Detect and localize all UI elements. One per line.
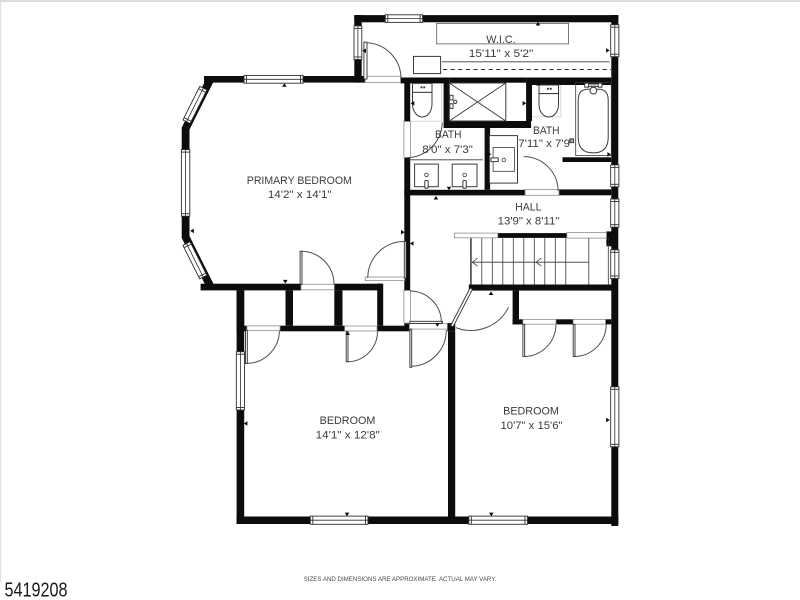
svg-text:14'1" x 12'8": 14'1" x 12'8" <box>316 430 380 442</box>
svg-text:PRIMARY BEDROOM: PRIMARY BEDROOM <box>247 175 352 187</box>
svg-text:HALL: HALL <box>515 201 541 213</box>
svg-text:10'7" x 15'6": 10'7" x 15'6" <box>501 420 563 432</box>
svg-text:W.I.C.: W.I.C. <box>486 34 516 46</box>
svg-text:BEDROOM: BEDROOM <box>503 406 559 418</box>
svg-text:14'2" x 14'1": 14'2" x 14'1" <box>268 189 332 201</box>
svg-text:BATH: BATH <box>435 129 462 141</box>
svg-text:15'11" x 5'2": 15'11" x 5'2" <box>469 48 534 60</box>
svg-text:BEDROOM: BEDROOM <box>320 415 376 427</box>
svg-text:5419208: 5419208 <box>5 580 68 600</box>
svg-text:7'11" x 7'9": 7'11" x 7'9" <box>518 138 574 150</box>
svg-text:BATH: BATH <box>533 125 560 137</box>
svg-text:SIZES AND DIMENSIONS ARE APPRO: SIZES AND DIMENSIONS ARE APPROXIMATE. AC… <box>304 576 497 583</box>
svg-text:13'9" x 8'11": 13'9" x 8'11" <box>498 215 560 227</box>
svg-text:8'0" x 7'3": 8'0" x 7'3" <box>422 144 473 156</box>
